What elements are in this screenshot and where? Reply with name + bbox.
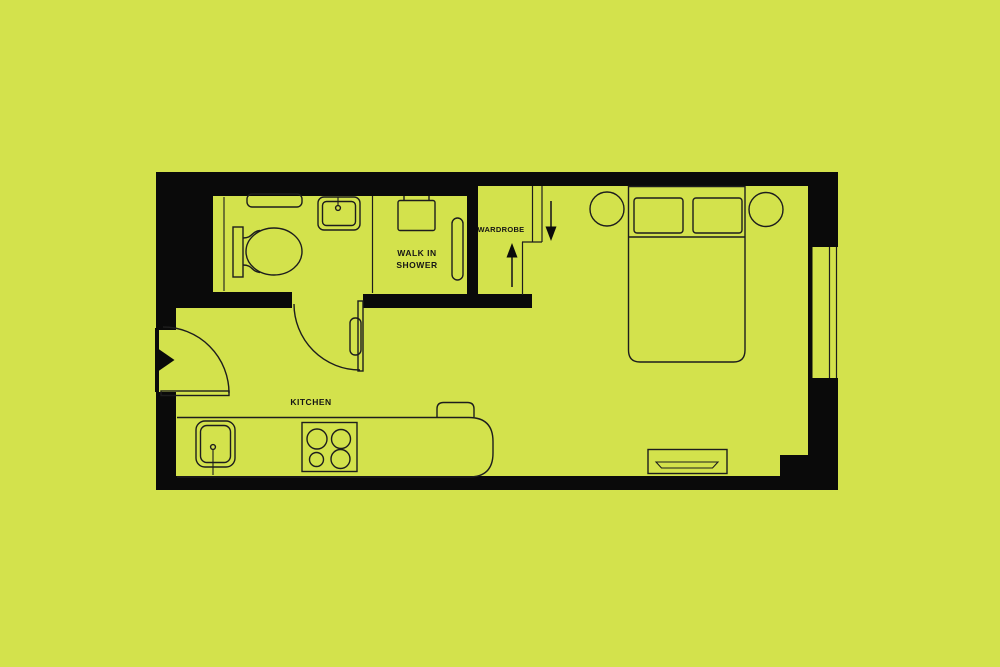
floor-plan: WALK IN SHOWER WARDROBE KITCHEN <box>0 0 1000 667</box>
towel-radiator <box>247 194 302 207</box>
pillow-left <box>634 198 683 233</box>
kitchen-counter <box>177 403 493 478</box>
bedside-table-right <box>749 193 783 227</box>
toilet <box>224 197 302 291</box>
radiator <box>648 450 727 474</box>
window <box>808 247 837 378</box>
fixtures-layer <box>0 0 1000 667</box>
wardrobe-arrow-up-icon <box>507 243 518 287</box>
shower-head-unit <box>398 196 435 231</box>
pillow-right <box>693 198 742 233</box>
entrance-arrow-icon <box>155 347 175 374</box>
counter-appliance <box>437 403 474 418</box>
kitchen-label: KITCHEN <box>271 396 351 408</box>
wardrobe-partition-lines <box>522 186 542 295</box>
kitchen-hob <box>302 423 357 472</box>
walk-in-shower-label: WALK IN SHOWER <box>377 247 457 271</box>
entrance-door <box>155 327 229 396</box>
wardrobe-label: WARDROBE <box>471 224 531 236</box>
wardrobe-arrow-down-icon <box>546 201 557 241</box>
bathroom-door <box>294 301 363 371</box>
bed <box>629 187 746 363</box>
basin <box>318 197 360 231</box>
bedside-table-left <box>590 192 624 226</box>
kitchen-sink <box>196 421 235 475</box>
